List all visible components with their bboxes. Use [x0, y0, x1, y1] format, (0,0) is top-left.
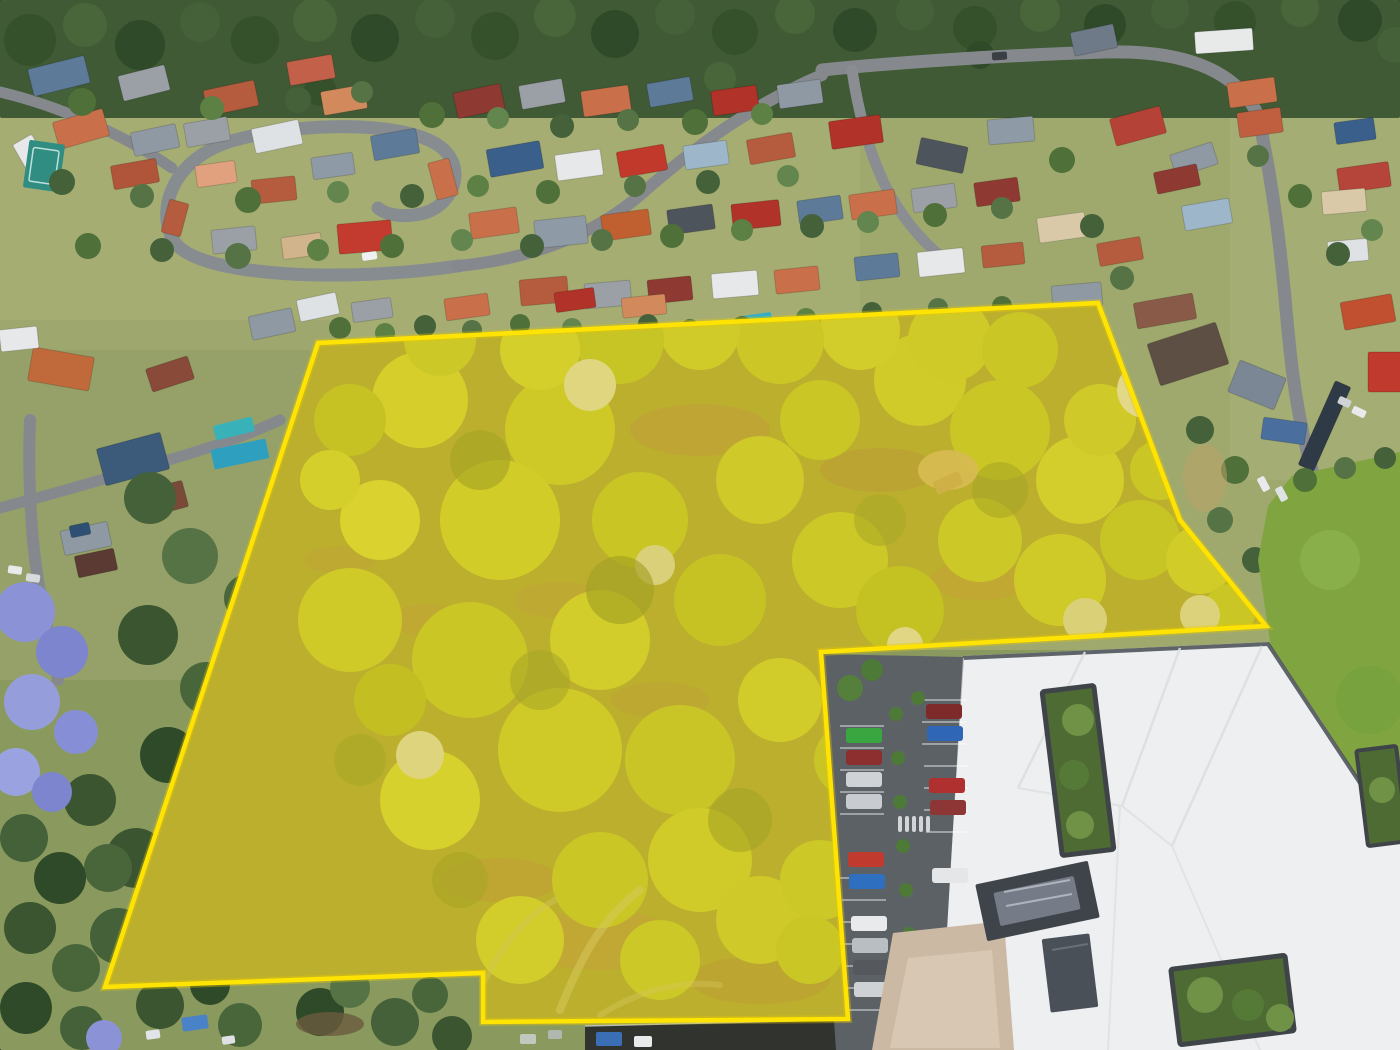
- tree-canopy: [536, 180, 560, 204]
- tree-canopy: [550, 114, 574, 138]
- parked-car: [851, 916, 887, 931]
- grass-field: [1300, 530, 1360, 590]
- house-roof: [1194, 28, 1253, 54]
- tree-canopy: [696, 170, 720, 194]
- forest-canopy: [64, 774, 116, 826]
- forest-canopy: [0, 982, 52, 1034]
- aerial-photo-canvas: [0, 0, 1400, 1050]
- tree-canopy: [487, 107, 509, 129]
- parked-car: [853, 960, 889, 975]
- forest-canopy: [833, 8, 877, 52]
- right-roadside-ground: [1183, 444, 1227, 512]
- parked-car: [926, 704, 962, 719]
- forest-canopy: [0, 814, 48, 862]
- tree-canopy: [800, 214, 824, 238]
- outbuilding: [634, 1036, 652, 1047]
- forest-canopy: [34, 852, 86, 904]
- tree-canopy: [682, 109, 708, 135]
- tree-canopy: [1326, 242, 1350, 266]
- outbuilding: [596, 1032, 622, 1046]
- house-roof: [1236, 107, 1283, 138]
- parked-car: [846, 728, 882, 743]
- forest-canopy: [124, 472, 176, 524]
- tree-canopy: [1207, 507, 1233, 533]
- planter-tree: [891, 751, 905, 765]
- yard-object: [296, 1012, 364, 1036]
- tree-canopy: [329, 317, 351, 339]
- parked-car: [932, 868, 968, 883]
- outbuilding: [520, 1034, 536, 1044]
- tree-canopy: [1080, 214, 1104, 238]
- planter-tree: [896, 839, 910, 853]
- aerial-photo: Aerial drone photograph of a suburban ne…: [0, 0, 1400, 1050]
- house-roof: [711, 270, 759, 299]
- forest-canopy: [231, 16, 279, 64]
- forest-canopy: [118, 605, 178, 665]
- parked-car: [930, 800, 966, 815]
- jacaranda-tree: [4, 674, 60, 730]
- tree-canopy: [200, 96, 224, 120]
- building-roof: [1187, 977, 1223, 1013]
- parked-car: [849, 874, 885, 889]
- forest-canopy: [84, 844, 132, 892]
- walkway: [872, 921, 1014, 1050]
- forest-canopy: [180, 2, 220, 42]
- building-roof: [1266, 1004, 1294, 1032]
- car: [992, 51, 1008, 60]
- grass-field: [1293, 468, 1317, 492]
- crossing-stripe: [926, 816, 930, 832]
- forest-canopy: [351, 14, 399, 62]
- tree-canopy: [1049, 147, 1075, 173]
- tree-canopy: [1288, 184, 1312, 208]
- forest-canopy: [371, 998, 419, 1046]
- crossing-stripe: [898, 816, 902, 832]
- parked-car: [929, 778, 965, 793]
- jacaranda-tree: [32, 772, 72, 812]
- house-roof: [987, 116, 1035, 145]
- crossing-stripe: [919, 816, 923, 832]
- tree-canopy: [75, 233, 101, 259]
- building-roof: [1369, 777, 1395, 803]
- grass-field: [1374, 447, 1396, 469]
- planter-tree: [893, 795, 907, 809]
- house-roof: [774, 266, 820, 294]
- house-roof: [917, 248, 965, 278]
- tree-canopy: [235, 187, 261, 213]
- tree-canopy: [68, 88, 96, 116]
- tree-canopy: [400, 184, 424, 208]
- house-roof: [854, 253, 900, 281]
- building-roof: [1066, 811, 1094, 839]
- tree-canopy: [731, 219, 753, 241]
- forest-canopy: [4, 14, 56, 66]
- parked-car: [852, 938, 888, 953]
- tree-canopy: [1247, 145, 1269, 167]
- tree-canopy: [150, 238, 174, 262]
- tree-canopy: [327, 181, 349, 203]
- tree-canopy: [451, 229, 473, 251]
- tree-canopy: [130, 184, 154, 208]
- tree-canopy: [1186, 416, 1214, 444]
- planter-tree: [899, 883, 913, 897]
- forest-canopy: [591, 10, 639, 58]
- car-park: [861, 659, 883, 681]
- jacaranda-tree: [36, 626, 88, 678]
- tree-canopy: [1110, 266, 1134, 290]
- forest-canopy: [162, 528, 218, 584]
- tree-canopy: [660, 224, 684, 248]
- plant-room: [1042, 933, 1099, 1012]
- parked-car: [846, 794, 882, 809]
- forest-canopy: [115, 20, 165, 70]
- forest-canopy: [712, 9, 758, 55]
- parked-car: [846, 750, 882, 765]
- dirt-patch: [1183, 444, 1227, 512]
- crossing-stripe: [905, 816, 909, 832]
- tree-canopy: [520, 234, 544, 258]
- tree-canopy: [1361, 219, 1383, 241]
- tree-canopy: [923, 203, 947, 227]
- parked-car: [846, 772, 882, 787]
- forest-canopy: [4, 902, 56, 954]
- planter-tree: [911, 691, 925, 705]
- building-roof: [1232, 989, 1264, 1021]
- tree-canopy: [991, 197, 1013, 219]
- jacaranda-tree: [54, 710, 98, 754]
- tree-canopy: [777, 165, 799, 187]
- tree-canopy: [351, 81, 373, 103]
- forest-canopy: [293, 0, 337, 42]
- forest-canopy: [52, 944, 100, 992]
- tree-canopy: [307, 239, 329, 261]
- tree-canopy: [624, 175, 646, 197]
- forest-canopy: [63, 3, 107, 47]
- grass-field: [1334, 457, 1356, 479]
- tree-canopy: [380, 234, 404, 258]
- house-roof: [621, 294, 667, 318]
- tree-canopy: [467, 175, 489, 197]
- crossing-stripe: [912, 816, 916, 832]
- parked-car: [927, 726, 963, 741]
- building-roof: [1062, 704, 1094, 736]
- house-roof: [981, 242, 1025, 268]
- tree-canopy: [857, 211, 879, 233]
- forest-canopy: [412, 977, 448, 1013]
- planter-tree: [889, 707, 903, 721]
- outbuilding: [548, 1030, 562, 1039]
- house-roof: [1321, 188, 1367, 215]
- tree-canopy: [225, 243, 251, 269]
- tree-canopy: [419, 102, 445, 128]
- tree-canopy: [591, 229, 613, 251]
- parked-car: [848, 852, 884, 867]
- forest-canopy: [471, 12, 519, 60]
- house-roof: [0, 326, 39, 352]
- tree-canopy: [751, 103, 773, 125]
- tree-canopy: [285, 87, 311, 113]
- forest-canopy: [1338, 0, 1382, 42]
- car-park: [837, 675, 863, 701]
- building-roof: [1059, 760, 1089, 790]
- tree-canopy: [617, 109, 639, 131]
- house-roof: [1368, 352, 1400, 392]
- tree-canopy: [49, 169, 75, 195]
